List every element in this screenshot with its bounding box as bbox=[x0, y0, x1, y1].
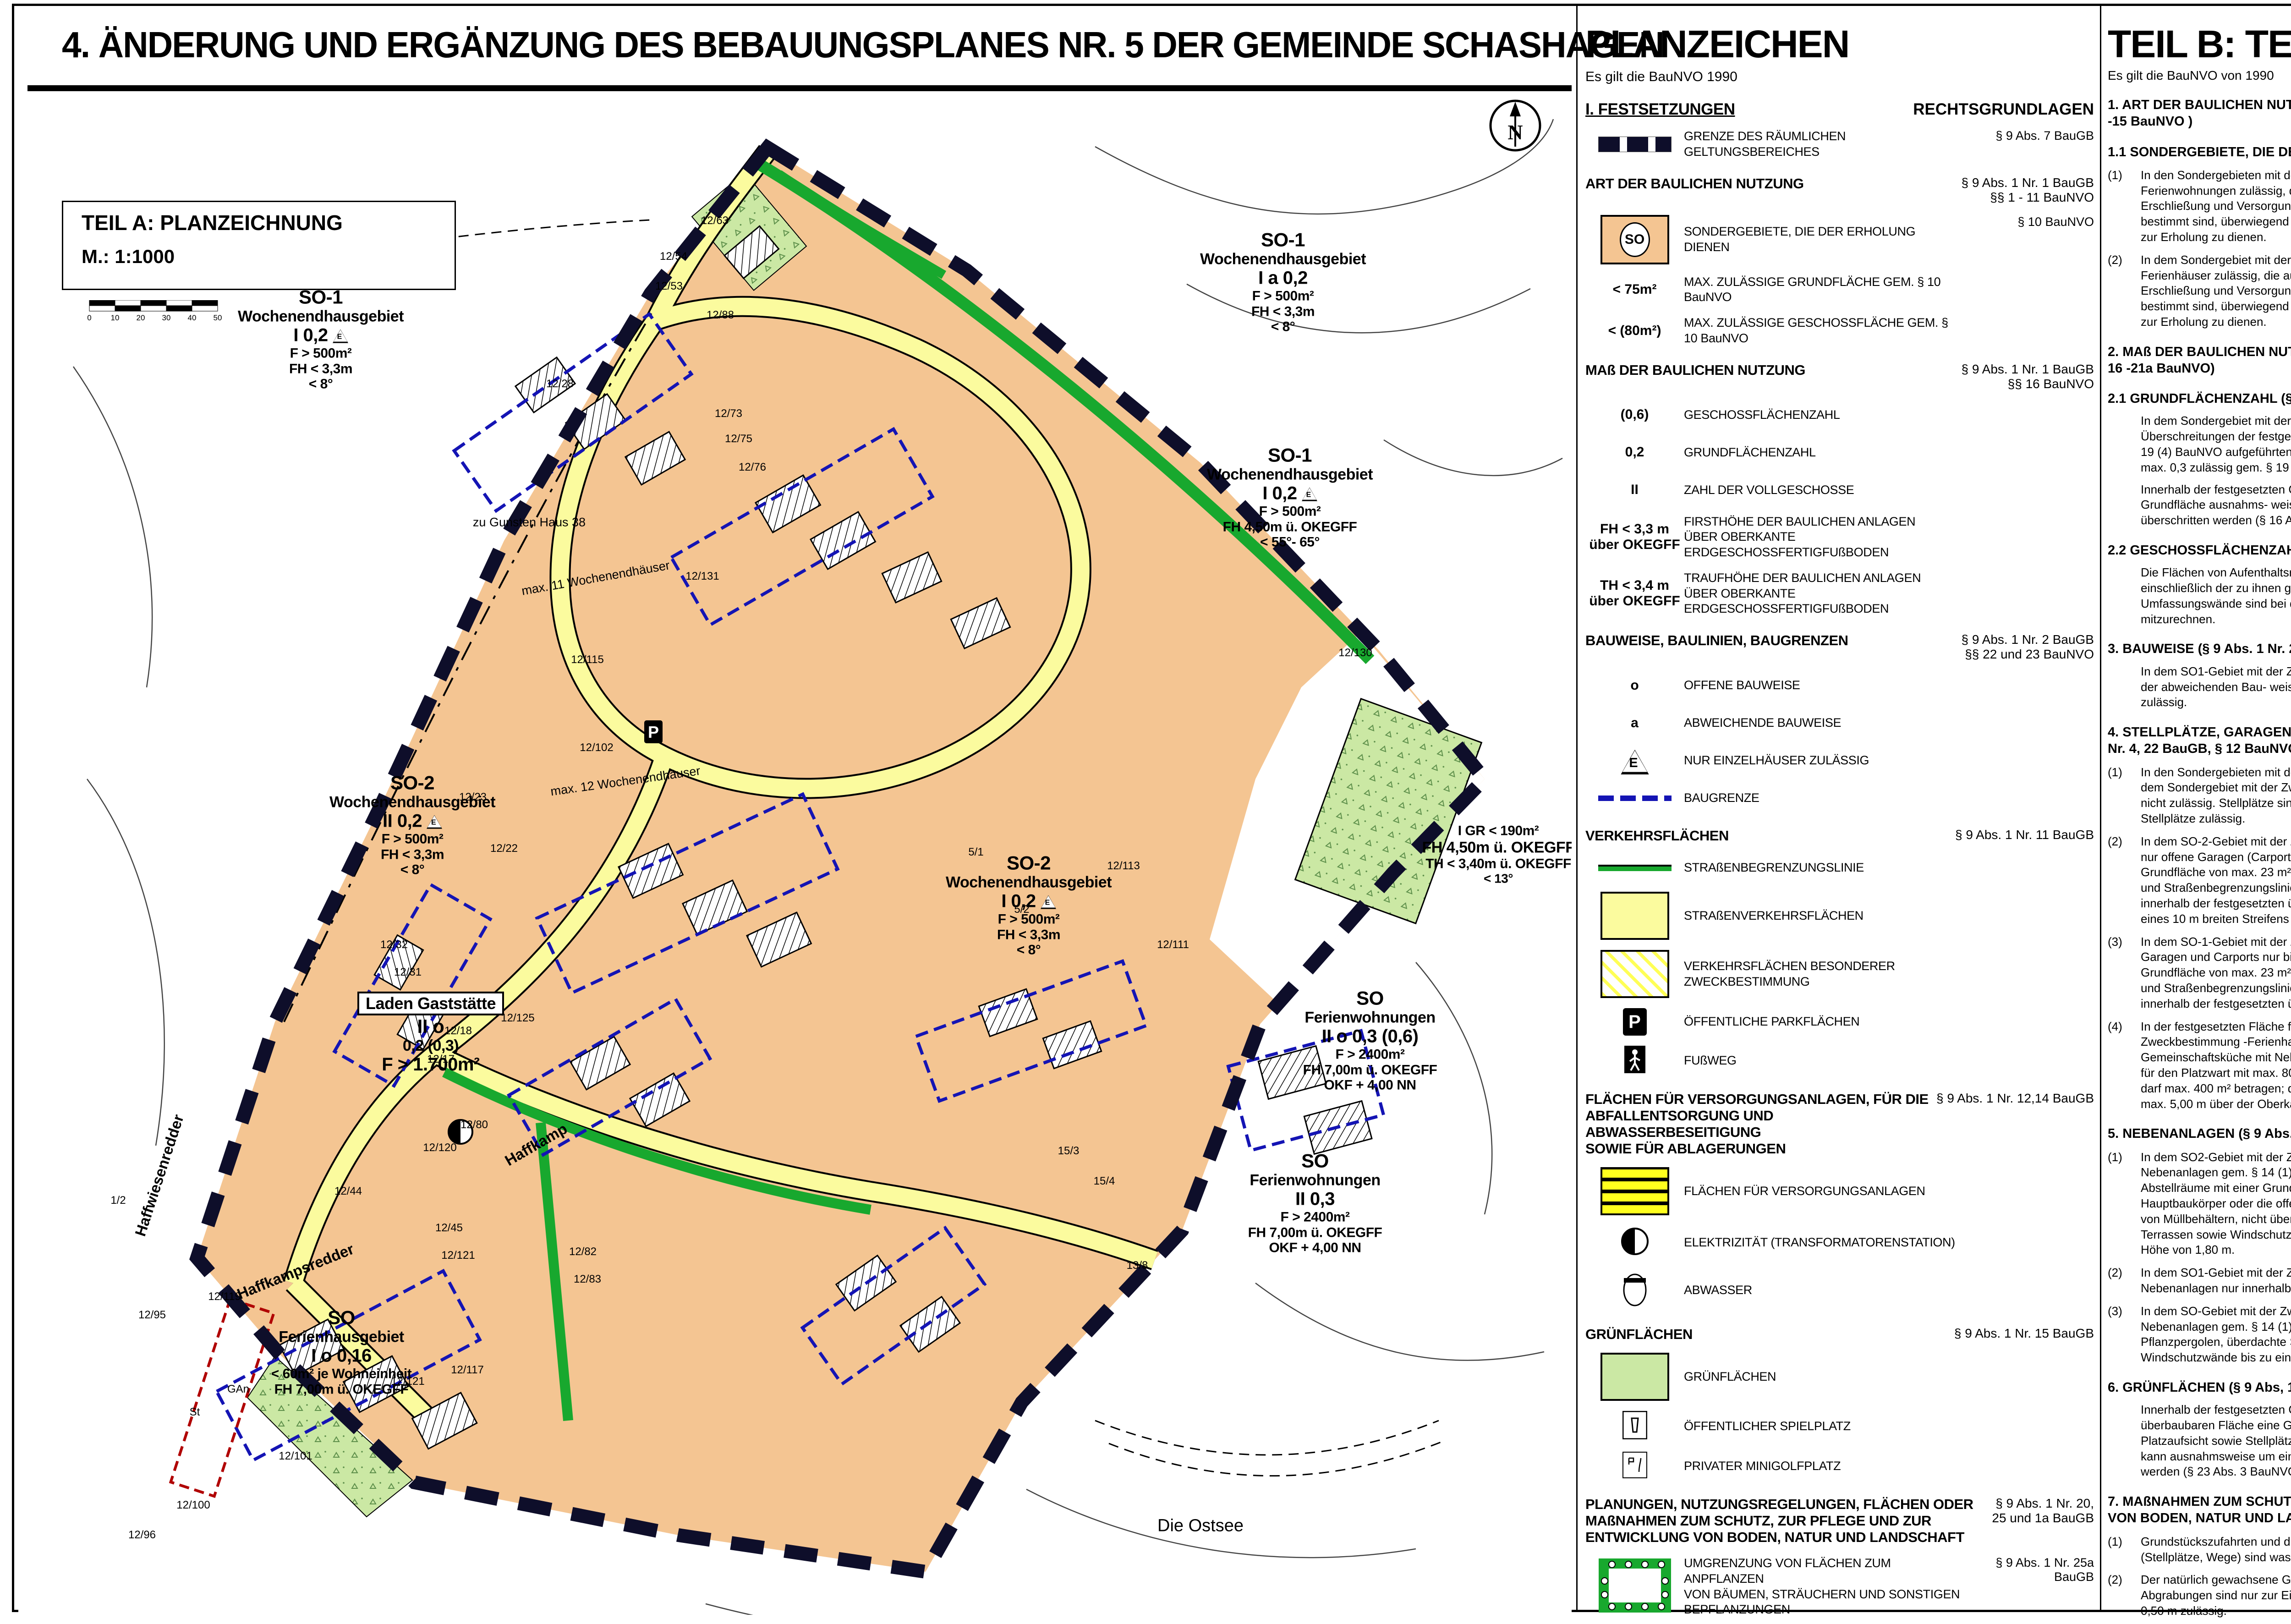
legend-heading-text: BAUWEISE, BAULINIEN, BAUGRENZEN bbox=[1585, 632, 1848, 662]
legend-item: PRIVATER MINIGOLFPLATZ bbox=[1585, 1452, 2094, 1481]
legend-item: aABWEICHENDE BAUWEISE bbox=[1585, 709, 2094, 737]
legend-symbol-cell: TH < 3,4 m über OKEGFF bbox=[1585, 578, 1684, 609]
legend-symbol-text: o bbox=[1630, 678, 1639, 694]
parcel-number: 12/102 bbox=[580, 741, 613, 754]
legend-item-ref: § 9 Abs. 7 BauGB bbox=[1961, 129, 2094, 143]
legend-item-label: GRENZE DES RÄUMLICHEN GELTUNGSBEREICHES bbox=[1684, 129, 1961, 160]
area-label-line: F > 500m² bbox=[238, 346, 404, 362]
legend-item-ref: § 10 BauNVO bbox=[1961, 215, 2094, 229]
laden-gaststaette-box: Laden Gaststätte bbox=[357, 992, 504, 1015]
parcel-number: 5/2 bbox=[1014, 903, 1029, 916]
parcel-number: 12/53 bbox=[655, 280, 683, 293]
svg-text:30: 30 bbox=[162, 313, 171, 322]
legend-symbol-cell bbox=[1585, 1411, 1684, 1442]
area-label-line: SO bbox=[271, 1306, 412, 1328]
parcel-number: 12/32 bbox=[380, 938, 408, 951]
legend-item-label: FIRSTHÖHE DER BAULICHEN ANLAGEN ÜBER OBE… bbox=[1684, 514, 1961, 560]
teilb-numbered-paragraph: (3)In dem SO-Gebiet mit der Zweckbestimm… bbox=[2108, 1304, 2291, 1366]
legend-heading-ref: § 9 Abs. 1 Nr. 20, 25 und 1a BauGB bbox=[1992, 1496, 2094, 1546]
legend-group-heading: BAUWEISE, BAULINIEN, BAUGRENZEN§ 9 Abs. … bbox=[1585, 632, 2094, 662]
legend-symbol-text: FH < 3,3 m über OKEGFF bbox=[1589, 521, 1680, 553]
legend-item: SOSONDERGEBIETE, DIE DER ERHOLUNG DIENEN… bbox=[1585, 215, 2094, 264]
teilb-numbered-paragraph: (2)Der natürlich gewachsene Geländeverla… bbox=[2108, 1572, 2291, 1619]
legend-item-label: ÖFFENTLICHE PARKFLÄCHEN bbox=[1684, 1014, 1961, 1030]
area-label-line: FH 7,00m ü. OKEGFF bbox=[1248, 1225, 1382, 1240]
legend-group-heading: MAß DER BAULICHEN NUTZUNG§ 9 Abs. 1 Nr. … bbox=[1585, 362, 2094, 391]
parcel-number: 12/111 bbox=[1157, 938, 1189, 951]
bebauungsplan-sheet: 4. ÄNDERUNG UND ERGÄNZUNG DES BEBAUUNGSP… bbox=[0, 0, 2291, 1624]
legend-item-label: FLÄCHEN FÜR VERSORGUNGSANLAGEN bbox=[1684, 1184, 1961, 1199]
area-label-line: < 8° bbox=[946, 943, 1112, 958]
parcel-number: 12/82 bbox=[569, 1245, 597, 1258]
legend-item: GRENZE DES RÄUMLICHEN GELTUNGSBEREICHES§… bbox=[1585, 129, 2094, 160]
area-label-line: FH < 3,3m bbox=[329, 847, 495, 862]
legend-item-label: ZAHL DER VOLLGESCHOSSE bbox=[1684, 483, 1961, 498]
legend-symbol-cell: SO bbox=[1585, 215, 1684, 264]
legend-symbol-text: II bbox=[1631, 482, 1639, 498]
teil-a-scale: M.: 1:1000 bbox=[82, 246, 175, 268]
legend-item: VERKEHRSFLÄCHEN BESONDERER ZWECKBESTIMMU… bbox=[1585, 950, 2094, 998]
parcel-number: 12/121 bbox=[441, 1249, 475, 1262]
teilb-section-heading: 5. NEBENANLAGEN (§ 9 Abs. 1 Nr. 4 BauGB,… bbox=[2108, 1125, 2291, 1142]
legend-heading-text: ART DER BAULICHEN NUTZUNG bbox=[1585, 176, 1804, 205]
teilb-heading-ref: (§ 9 Abs. 1 Nr. 1 BauGB i.V. mit §§ 1 -1… bbox=[2108, 98, 2291, 129]
legend-item: FH < 3,3 m über OKEGFFFIRSTHÖHE DER BAUL… bbox=[1585, 514, 2094, 560]
teilb-paragraph: Die Flächen von Aufenthaltsräumen in and… bbox=[2141, 565, 2291, 627]
teilb-subsection-heading: 1.1 SONDERGEBIETE, DIE DER ERHOLUNG DIEN… bbox=[2108, 144, 2291, 160]
teilb-section-heading: 7. MAßNAHMEN ZUM SCHUTZ, ZUR PFLEGE UND … bbox=[2108, 1493, 2291, 1527]
area-label-line: II o 0,3 (0,6) bbox=[1303, 1026, 1437, 1047]
map-area-label: SOFerienhausgebietI o 0,16< 60m² je Wohn… bbox=[271, 1306, 412, 1397]
map-area-label: SO-2WochenendhausgebietII 0,2EF > 500m²F… bbox=[329, 772, 495, 878]
teilb-section-heading: 4. STELLPLÄTZE, GARAGEN, GEMEINSCHAFTSAN… bbox=[2108, 724, 2291, 757]
teilb-paragraph-text: In den Sondergebieten mit der Zweckbesti… bbox=[2141, 765, 2291, 827]
legend-heading-ref: § 9 Abs. 1 Nr. 15 BauGB bbox=[1954, 1326, 2094, 1343]
plantborder-icon bbox=[1598, 1558, 1672, 1615]
legend-group-heading: GRÜNFLÄCHEN§ 9 Abs. 1 Nr. 15 BauGB bbox=[1585, 1326, 2094, 1343]
parcel-number: 12/28 bbox=[546, 378, 574, 390]
teilb-heading-ref: (§ 9 Abs. 1 Nr. 2 und 3 BauGB i.V. mit §… bbox=[2198, 642, 2291, 656]
teilb-numbered-paragraph: (1)In den Sondergebieten mit der Zweckbe… bbox=[2108, 765, 2291, 827]
footpath-icon bbox=[1624, 1046, 1645, 1075]
electro-icon bbox=[1619, 1225, 1651, 1260]
teilb-paragraph-text: In dem Sondergebiet mit der Zweckbestimm… bbox=[2141, 252, 2291, 330]
parcel-number: 12/130 bbox=[1338, 647, 1372, 659]
legend-symbol-text: TH < 3,4 m über OKEGFF bbox=[1589, 578, 1680, 609]
legend-symbol-cell bbox=[1585, 865, 1684, 871]
so-icon: SO bbox=[1600, 215, 1669, 264]
legend-item: UMGRENZUNG VON FLÄCHEN ZUM ANPFLANZEN VO… bbox=[1585, 1556, 2094, 1618]
legend-column: PLANZEICHEN Es gilt die BauNVO 1990 I. F… bbox=[1585, 0, 2094, 1624]
legend-heading-text: GRÜNFLÄCHEN bbox=[1585, 1326, 1693, 1343]
einzelhaus-triangle-icon: E bbox=[427, 815, 442, 829]
legend-item-label: ELEKTRIZITÄT (TRANSFORMATORENSTATION) bbox=[1684, 1235, 1961, 1251]
sewage-icon bbox=[1620, 1270, 1650, 1311]
scale-bar: 01020304050 bbox=[80, 300, 236, 327]
area-label-line: < 13° bbox=[1422, 872, 1572, 886]
parcel-number: 12/44 bbox=[334, 1185, 362, 1198]
boundary-icon bbox=[1598, 137, 1672, 152]
legend-item: ENUR EINZELHÄUSER ZULÄSSIG bbox=[1585, 747, 2094, 774]
streetspecial-icon bbox=[1600, 950, 1669, 998]
svg-text:40: 40 bbox=[188, 313, 197, 322]
parcel-number: 12/125 bbox=[501, 1012, 534, 1025]
teilb-numbered-paragraph: (4)In der festgesetzten Fläche für Gemei… bbox=[2108, 1019, 2291, 1112]
area-label-line: Ferienwohnungen bbox=[1303, 1009, 1437, 1026]
teilb-numbered-paragraph: (2)In dem SO-2-Gebiet mit der Zweckbesti… bbox=[2108, 834, 2291, 927]
legend-item-label: GESCHOSSFLÄCHENZAHL bbox=[1684, 407, 1961, 423]
page-title: 4. ÄNDERUNG UND ERGÄNZUNG DES BEBAUUNGSP… bbox=[62, 24, 1505, 66]
parcel-number: 12/18 bbox=[444, 1025, 472, 1037]
area-label-line: F > 500m² bbox=[1207, 504, 1373, 520]
legend-heading-ref: § 9 Abs. 1 Nr. 12,14 BauGB bbox=[1936, 1091, 2094, 1157]
area-label-line: F > 2400m² bbox=[1303, 1047, 1437, 1063]
legend-item: STRAßENBEGRENZUNGSLINIE bbox=[1585, 854, 2094, 882]
teilb-heading-ref: (§ 19 BauNVO) bbox=[2281, 391, 2291, 406]
parcel-number: 12/117 bbox=[451, 1364, 484, 1377]
legend-group-heading: ART DER BAULICHEN NUTZUNG§ 9 Abs. 1 Nr. … bbox=[1585, 176, 2094, 205]
legend-item: (0,6)GESCHOSSFLÄCHENZAHL bbox=[1585, 401, 2094, 429]
legend-symbol-text: (0,6) bbox=[1621, 407, 1649, 423]
teilb-paragraph-number: (4) bbox=[2108, 1019, 2141, 1112]
area-label-line: I 0,2E bbox=[238, 325, 404, 346]
teilb-paragraph-number: (2) bbox=[2108, 252, 2141, 330]
legend-item: TH < 3,4 m über OKEGFFTRAUFHÖHE DER BAUL… bbox=[1585, 571, 2094, 617]
teilb-subsection-heading: 2.1 GRUNDFLÄCHENZAHL (§ 19 BauNVO) bbox=[2108, 390, 2291, 407]
teilb-numbered-paragraph: (2)In dem SO1-Gebiet mit der Zweckbestim… bbox=[2108, 1265, 2291, 1296]
teilb-numbered-paragraph: (1)Grundstückszufahrten und die befestig… bbox=[2108, 1534, 2291, 1565]
legend-symbol-cell bbox=[1585, 137, 1684, 152]
teil-a-box: TEIL A: PLANZEICHNUNG M.: 1:1000 bbox=[62, 201, 456, 290]
legend-item-label: ÖFFENTLICHER SPIELPLATZ bbox=[1684, 1419, 1961, 1434]
teilb-section-heading: 1. ART DER BAULICHEN NUTZUNG (§ 9 Abs. 1… bbox=[2108, 97, 2291, 130]
teilb-paragraph-number: (3) bbox=[2108, 1304, 2141, 1366]
legend-item: ELEKTRIZITÄT (TRANSFORMATORENSTATION) bbox=[1585, 1225, 2094, 1260]
legend-title: PLANZEICHEN bbox=[1585, 22, 2094, 66]
teilb-section-heading: 6. GRÜNFLÄCHEN (§ 9 Abs, 1 Nr. 15 BauGB) bbox=[2108, 1379, 2291, 1396]
legend-item-label: STRAßENBEGRENZUNGSLINIE bbox=[1684, 860, 1961, 876]
area-label-line: Wochenendhausgebiet bbox=[1207, 466, 1373, 483]
legend-item-label: GRUNDFLÄCHENZAHL bbox=[1684, 445, 1961, 461]
parcel-number: 1/2 bbox=[110, 1194, 126, 1207]
area-label-line: SO bbox=[1303, 988, 1437, 1009]
legend-item-label: TRAUFHÖHE DER BAULICHEN ANLAGEN ÜBER OBE… bbox=[1684, 571, 1961, 617]
teilb-paragraph-text: In den Sondergebieten mit der Zweckbesti… bbox=[2141, 168, 2291, 245]
legend-item-label: BAUGRENZE bbox=[1684, 790, 1961, 806]
map-right-divider bbox=[1576, 4, 1578, 1612]
parcel-number: 12/76 bbox=[739, 461, 766, 474]
legend-symbol-cell bbox=[1585, 1353, 1684, 1401]
area-label-line: < 55°- 65° bbox=[1207, 535, 1373, 550]
legend-symbol-cell bbox=[1585, 892, 1684, 940]
teilb-paragraph-text: In dem SO-1-Gebiet mit der Zweckbestimmu… bbox=[2141, 934, 2291, 1012]
area-label-line: 0,2 (0,3) bbox=[357, 1037, 504, 1054]
area-label-line: Wochenendhausgebiet bbox=[1200, 251, 1366, 268]
legend-symbol-cell: E bbox=[1585, 749, 1684, 773]
parcel-number: 12/115 bbox=[571, 653, 604, 666]
teilb-paragraph-text: In der festgesetzten Fläche für Gemeinsc… bbox=[2141, 1019, 2291, 1112]
legend-symbol-text: 0,2 bbox=[1625, 444, 1644, 461]
svg-text:0: 0 bbox=[87, 313, 91, 322]
parcel-number: 12/119 bbox=[208, 1290, 241, 1303]
svg-text:20: 20 bbox=[137, 313, 145, 322]
parcel-number: 15/4 bbox=[1094, 1175, 1115, 1188]
einzelhaus-triangle-icon: E bbox=[333, 329, 348, 343]
green-icon bbox=[1600, 1353, 1669, 1401]
parcel-number: 12/22 bbox=[490, 842, 518, 855]
legend-symbol-cell bbox=[1585, 950, 1684, 998]
parcel-number: 12/100 bbox=[176, 1499, 210, 1512]
area-label-line: I GR < 190m² bbox=[1422, 823, 1572, 839]
legend-heading-ref: § 9 Abs. 1 Nr. 1 BauGB §§ 1 - 11 BauNVO bbox=[1961, 176, 2094, 205]
area-label-line: TH < 3,40m ü. OKEGFF bbox=[1422, 856, 1572, 872]
parcel-number: 12/31 bbox=[394, 966, 422, 979]
parcel-number: 12/73 bbox=[715, 407, 742, 420]
area-label-line: Ferienwohnungen bbox=[1248, 1172, 1382, 1189]
area-label-line: FH 4,50m ü. OKEGFF bbox=[1422, 839, 1572, 856]
legend-group-heading: VERKEHRSFLÄCHEN§ 9 Abs. 1 Nr. 11 BauGB bbox=[1585, 828, 2094, 844]
parcel-number: 13/8 bbox=[1127, 1259, 1148, 1272]
legend-symbol-cell bbox=[1585, 1225, 1684, 1260]
parcel-number: 12/88 bbox=[707, 309, 734, 322]
teilb-heading-ref: (§ 9 Abs. 1 Nr. 1 BauGB i.V. mit §§ 16 -… bbox=[2108, 345, 2291, 376]
teilb-paragraph-number: (2) bbox=[2108, 1572, 2141, 1619]
teilb-paragraph-text: Der natürlich gewachsene Geländeverlauf … bbox=[2141, 1572, 2291, 1619]
area-label-line: SO-1 bbox=[1207, 444, 1373, 466]
legend-symbol-text: < (80m²) bbox=[1608, 323, 1661, 339]
legend-heading-text: FLÄCHEN FÜR VERSORGUNGSANLAGEN, FÜR DIE … bbox=[1585, 1091, 1936, 1157]
legend-item: 0,2GRUNDFLÄCHENZAHL bbox=[1585, 439, 2094, 466]
area-label-line: < 8° bbox=[1200, 319, 1366, 335]
parcel-number: St bbox=[190, 1406, 200, 1419]
map-area-label: SOFerienwohnungenII 0,3F > 2400m²FH 7,00… bbox=[1248, 1150, 1382, 1256]
area-label-line: Ferienhausgebiet bbox=[271, 1328, 412, 1345]
map-labels-overlay: SO-1WochenendhausgebietI 0,2EF > 500m²FH… bbox=[18, 92, 1572, 1615]
legend-symbol-cell bbox=[1585, 1558, 1684, 1615]
legend-heading-ref: § 9 Abs. 1 Nr. 11 BauGB bbox=[1955, 828, 2094, 844]
legend-item-label: OFFENE BAUWEISE bbox=[1684, 678, 1961, 693]
area-label-line: FH < 3,3m bbox=[1200, 304, 1366, 319]
teilb-numbered-paragraph: (1)In dem SO2-Gebiet mit der Zweckbestim… bbox=[2108, 1150, 2291, 1258]
legend-symbol-text: a bbox=[1631, 715, 1639, 731]
svg-text:10: 10 bbox=[111, 313, 120, 322]
parcel-number: 12/80 bbox=[460, 1119, 488, 1131]
teilb-paragraph-number: (3) bbox=[2108, 934, 2141, 1012]
legend-section-heading: I. FESTSETZUNGENRECHTSGRUNDLAGEN bbox=[1585, 100, 2094, 119]
parcel-number: 12/83 bbox=[574, 1273, 601, 1286]
parcel-number: 12/45 bbox=[435, 1222, 463, 1234]
legend-item-label: ABWEICHENDE BAUWEISE bbox=[1684, 715, 1961, 731]
legend-item: < 75m²MAX. ZULÄSSIGE GRUNDFLÄCHE GEM. § … bbox=[1585, 274, 2094, 306]
area-label-line: OKF + 4,00 NN bbox=[1248, 1240, 1382, 1256]
legend-item: GRÜNFLÄCHEN bbox=[1585, 1353, 2094, 1401]
map-note-label: max. 11 Wochenendhäuser bbox=[521, 558, 671, 598]
teilb-heading-ref: (§ 9 Abs. 1 Nr. 4, 22 BauGB, § 12 BauNVO… bbox=[2108, 725, 2291, 756]
area-label-line: SO bbox=[1248, 1150, 1382, 1172]
legend-group-heading: PLANUNGEN, NUTZUNGSREGELUNGEN, FLÄCHEN O… bbox=[1585, 1496, 2094, 1546]
legend-item-label: ABWASSER bbox=[1684, 1283, 1961, 1298]
teilb-section-heading: 2. MAß DER BAULICHEN NUTZUNG (§ 9 Abs. 1… bbox=[2108, 344, 2291, 377]
legend-heading-ref: § 9 Abs. 1 Nr. 2 BauGB §§ 22 und 23 BauN… bbox=[1961, 632, 2094, 662]
teilb-paragraph-number: (2) bbox=[2108, 1265, 2141, 1296]
map-note-label: zu Gunsten Haus 38 bbox=[473, 516, 586, 530]
parcel-number: 12/131 bbox=[685, 570, 719, 583]
svg-text:50: 50 bbox=[214, 313, 222, 322]
legend-item-label: SONDERGEBIETE, DIE DER ERHOLUNG DIENEN bbox=[1684, 224, 1961, 255]
area-label-line: F > 2400m² bbox=[1248, 1210, 1382, 1225]
parcel-number: 5/1 bbox=[968, 846, 983, 859]
parcel-number: GAn bbox=[227, 1383, 249, 1396]
teil-b-column: TEIL B: TEXT Es gilt die BauNVO von 1990… bbox=[2108, 0, 2291, 1624]
parcel-number: 12/96 bbox=[128, 1529, 156, 1542]
teilb-paragraph-text: In dem SO-2-Gebiet mit der Zweckbestimmu… bbox=[2141, 834, 2291, 927]
legend-heading-ref: § 9 Abs. 1 Nr. 1 BauGB §§ 16 BauNVO bbox=[1961, 362, 2094, 391]
playground-icon bbox=[1622, 1411, 1647, 1442]
legend-symbol-cell: (0,6) bbox=[1585, 407, 1684, 423]
legend-symbol-cell: < 75m² bbox=[1585, 282, 1684, 298]
einzelhaus-triangle-icon: E bbox=[1621, 750, 1649, 774]
legend-heading-text: MAß DER BAULICHEN NUTZUNG bbox=[1585, 362, 1805, 391]
street-name-label: Haffkamp bbox=[502, 1120, 570, 1169]
legend-symbol-cell bbox=[1585, 1452, 1684, 1481]
map-area-label: SOFerienwohnungenII o 0,3 (0,6)F > 2400m… bbox=[1303, 988, 1437, 1093]
legend-heading-text: VERKEHRSFLÄCHEN bbox=[1585, 828, 1729, 844]
parking-icon: P bbox=[1623, 1008, 1647, 1036]
teilb-paragraph-text: In dem SO1-Gebiet mit der Zweckbestimmun… bbox=[2141, 1265, 2291, 1296]
parcel-number: 12/101 bbox=[279, 1450, 312, 1463]
legend-symbol-cell bbox=[1585, 796, 1684, 801]
area-label-line: FH 4,50m ü. OKEGFF bbox=[1207, 519, 1373, 535]
teilb-paragraph: Innerhalb der festgesetzten Grünfläche -… bbox=[2141, 482, 2291, 528]
area-label-line: SO-1 bbox=[1200, 229, 1366, 251]
legend-item-label: FUßWEG bbox=[1684, 1053, 1961, 1069]
teilb-numbered-paragraph: (2)In dem Sondergebiet mit der Zweckbest… bbox=[2108, 252, 2291, 330]
map-area-label: SO-1WochenendhausgebietI 0,2EF > 500m²FH… bbox=[238, 286, 404, 392]
supply-icon bbox=[1600, 1167, 1669, 1215]
legend-symbol-cell: P bbox=[1585, 1008, 1684, 1036]
legend-item: STRAßENVERKEHRSFLÄCHEN bbox=[1585, 892, 2094, 940]
parcel-number: 12/113 bbox=[1107, 860, 1140, 872]
legend-item: oOFFENE BAUWEISE bbox=[1585, 672, 2094, 699]
legend-item-label: PRIVATER MINIGOLFPLATZ bbox=[1684, 1459, 1961, 1474]
area-label-line: I o 0,16 bbox=[271, 1346, 412, 1366]
legend-symbol-cell: II bbox=[1585, 482, 1684, 498]
area-label-line: FH < 3,3m bbox=[946, 927, 1112, 943]
streetline-icon bbox=[1598, 865, 1672, 871]
teilb-paragraph: Innerhalb der festgesetzten Grünfläche -… bbox=[2141, 1402, 2291, 1480]
area-label-line: FH 7,00m ü. OKEGFF bbox=[1303, 1062, 1437, 1078]
area-label-line: II 0,2E bbox=[329, 811, 495, 832]
map-note-label: Die Ostsee bbox=[1157, 1516, 1244, 1536]
area-label-line: < 8° bbox=[329, 862, 495, 878]
teilb-paragraph-text: In dem SO2-Gebiet mit der Zweckbestimmun… bbox=[2141, 1150, 2291, 1258]
legend-symbol-cell: o bbox=[1585, 678, 1684, 694]
legend-item-label: NUR EINZELHÄUSER ZULÄSSIG bbox=[1684, 753, 1961, 768]
parcel-number: 12/95 bbox=[138, 1309, 166, 1322]
legend-item-label: STRAßENVERKEHRSFLÄCHEN bbox=[1684, 908, 1961, 924]
column-divider-1 bbox=[2100, 4, 2101, 1612]
einzelhaus-triangle-icon: E bbox=[1302, 488, 1317, 501]
legend-item: FUßWEG bbox=[1585, 1046, 2094, 1075]
legend-symbol-cell: < (80m²) bbox=[1585, 323, 1684, 339]
parcel-number: 12/75 bbox=[725, 433, 752, 445]
area-label-line: FH < 3,3m bbox=[238, 361, 404, 377]
teil-b-title: TEIL B: TEXT bbox=[2108, 22, 2291, 66]
parcel-number: 12/23 bbox=[459, 791, 487, 804]
map-note-label: max. 12 Wochenendhäuser bbox=[550, 764, 702, 799]
baugrenze-icon bbox=[1598, 796, 1672, 801]
area-label-line: F > 500m² bbox=[329, 832, 495, 847]
legend-item-ref: § 9 Abs. 1 Nr. 25a BauGB bbox=[1961, 1556, 2094, 1584]
trie-icon: E bbox=[1627, 749, 1643, 773]
area-label-line: I a 0,2 bbox=[1200, 268, 1366, 289]
legend-symbol-cell bbox=[1585, 1046, 1684, 1075]
map-area-label: SO-1WochenendhausgebietI 0,2EF > 500m²FH… bbox=[1207, 444, 1373, 550]
legend-item: < (80m²)MAX. ZULÄSSIGE GESCHOSSFLÄCHE GE… bbox=[1585, 315, 2094, 346]
legend-subtitle: Es gilt die BauNVO 1990 bbox=[1585, 69, 2094, 85]
legend-item-label: MAX. ZULÄSSIGE GRUNDFLÄCHE GEM. § 10 Bau… bbox=[1684, 274, 1961, 306]
legend-item-label: MAX. ZULÄSSIGE GESCHOSSFLÄCHE GEM. § 10 … bbox=[1684, 315, 1961, 346]
map-panel[interactable]: P N SO-1WochenendhausgebietI 0,2EF > 500… bbox=[18, 92, 1572, 1615]
legend-symbol-cell: 0,2 bbox=[1585, 444, 1684, 461]
area-label-line: < 60m² je Wohneinheit bbox=[271, 1366, 412, 1382]
area-label-line: OKF + 4,00 NN bbox=[1303, 1078, 1437, 1093]
parcel-number: 15/3 bbox=[1058, 1145, 1080, 1158]
teil-a-title: TEIL A: PLANZEICHNUNG bbox=[82, 210, 343, 235]
teilb-heading-ref: (§ 9 Abs. 1 Nr. 4 BauGB, § 14 BauNVO) bbox=[2238, 1126, 2291, 1141]
teilb-numbered-paragraph: (1)In den Sondergebieten mit der Zweckbe… bbox=[2108, 168, 2291, 245]
legend-item: IIZAHL DER VOLLGESCHOSSE bbox=[1585, 477, 2094, 504]
legend-heading-text: PLANUNGEN, NUTZUNGSREGELUNGEN, FLÄCHEN O… bbox=[1585, 1496, 1973, 1546]
area-label-line: F > 500m² bbox=[1200, 289, 1366, 304]
parcel-number: 12/54 bbox=[660, 250, 687, 263]
parcel-number: 12/120 bbox=[423, 1141, 456, 1154]
teilb-section-heading: 3. BAUWEISE (§ 9 Abs. 1 Nr. 2 und 3 BauG… bbox=[2108, 641, 2291, 657]
legend-symbol-cell bbox=[1585, 1270, 1684, 1311]
teilb-paragraph-number: (1) bbox=[2108, 765, 2141, 827]
teilb-paragraph-number: (1) bbox=[2108, 1534, 2141, 1565]
teilb-paragraph: In dem Sondergebiet mit der Zweckbestimm… bbox=[2141, 413, 2291, 475]
area-label-box: Laden Gaststätte bbox=[357, 992, 504, 1015]
streetarea-icon bbox=[1600, 892, 1669, 940]
teilb-paragraph-text: Grundstückszufahrten und die befestigten… bbox=[2141, 1534, 2291, 1565]
area-label-line: FH 7,00m ü. OKEGFF bbox=[271, 1382, 412, 1397]
parcel-number: 12/63 bbox=[701, 214, 729, 227]
legend-item: PÖFFENTLICHE PARKFLÄCHEN bbox=[1585, 1008, 2094, 1036]
legend-heading-ref: RECHTSGRUNDLAGEN bbox=[1913, 100, 2094, 119]
legend-item-label: GRÜNFLÄCHEN bbox=[1684, 1369, 1961, 1385]
teilb-paragraph-text: In dem SO-Gebiet mit der Zweckbestimmung… bbox=[2141, 1304, 2291, 1366]
area-label-line: Wochenendhausgebiet bbox=[238, 308, 404, 325]
teilb-subsection-heading: 2.2 GESCHOSSFLÄCHENZAHL (§ 20 BauNVO) bbox=[2108, 542, 2291, 559]
legend-item-label: VERKEHRSFLÄCHEN BESONDERER ZWECKBESTIMMU… bbox=[1684, 959, 1961, 990]
legend-symbol-text: < 75m² bbox=[1613, 282, 1657, 298]
legend-item: FLÄCHEN FÜR VERSORGUNGSANLAGEN bbox=[1585, 1167, 2094, 1215]
parcel-number: 12/121 bbox=[391, 1375, 424, 1388]
teilb-numbered-paragraph: (3)In dem SO-1-Gebiet mit der Zweckbesti… bbox=[2108, 934, 2291, 1012]
legend-symbol-cell: FH < 3,3 m über OKEGFF bbox=[1585, 521, 1684, 553]
legend-symbol-cell bbox=[1585, 1167, 1684, 1215]
legend-group-heading: FLÄCHEN FÜR VERSORGUNGSANLAGEN, FÜR DIE … bbox=[1585, 1091, 2094, 1157]
minigolf-icon bbox=[1622, 1452, 1647, 1481]
legend-item-label: UMGRENZUNG VON FLÄCHEN ZUM ANPFLANZEN VO… bbox=[1684, 1556, 1961, 1618]
teilb-heading-ref: (§ 9 Abs, 1 Nr. 15 BauGB) bbox=[2229, 1380, 2291, 1395]
teilb-paragraph-number: (1) bbox=[2108, 1150, 2141, 1258]
area-label-line: II 0,3 bbox=[1248, 1189, 1382, 1210]
legend-heading-text: I. FESTSETZUNGEN bbox=[1585, 100, 1735, 119]
legend-item: ÖFFENTLICHER SPIELPLATZ bbox=[1585, 1411, 2094, 1442]
area-label-line: II o bbox=[357, 1015, 504, 1037]
